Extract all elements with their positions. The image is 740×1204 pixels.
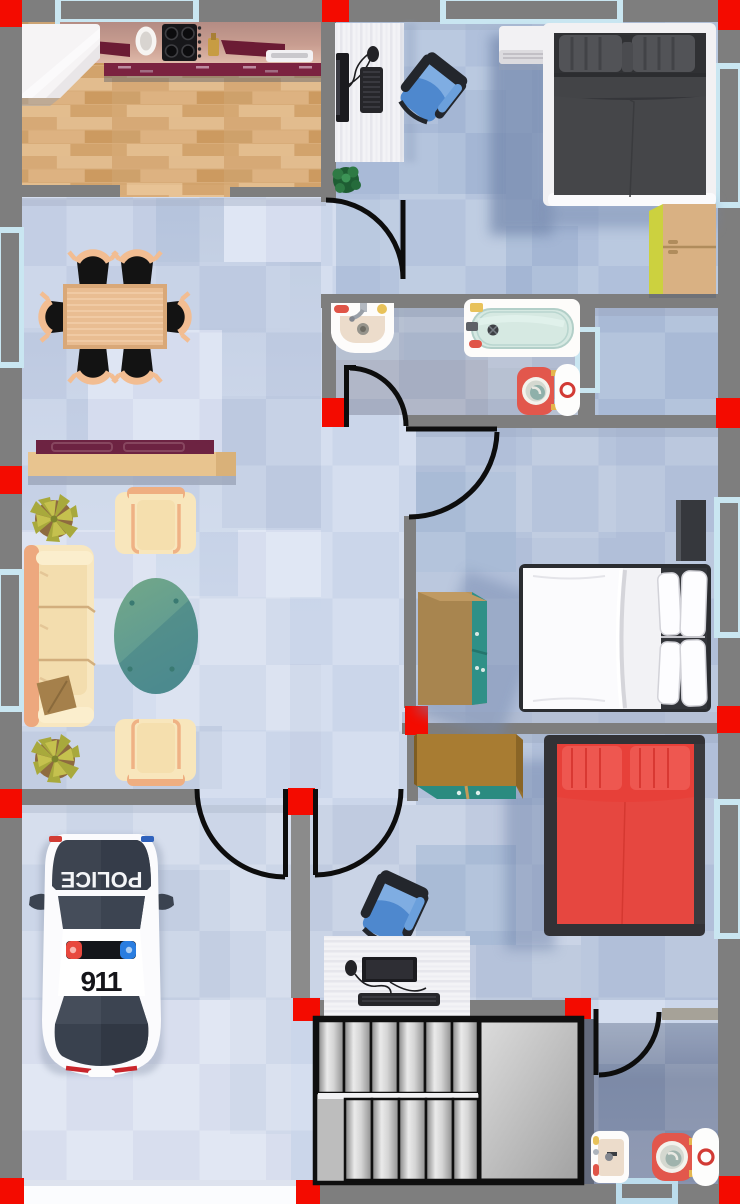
- svg-text:911: 911: [81, 966, 123, 997]
- svg-text:POLICE: POLICE: [61, 867, 143, 892]
